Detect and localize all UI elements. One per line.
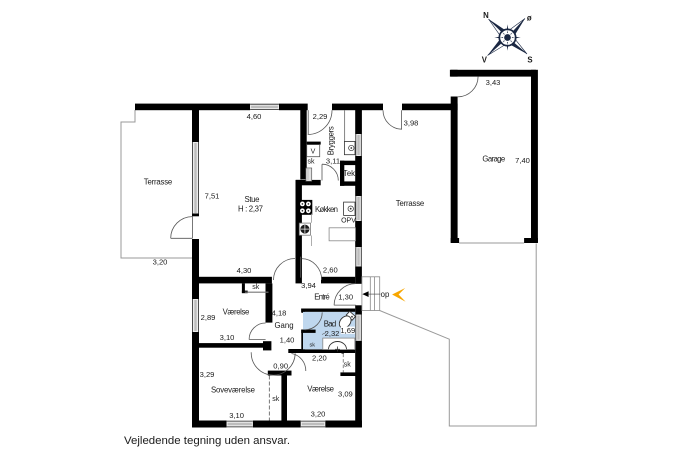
svg-text:ø: ø (527, 14, 532, 23)
svg-text:3,98: 3,98 (404, 118, 419, 127)
svg-text:2,89: 2,89 (201, 313, 216, 322)
svg-text:1,69: 1,69 (340, 326, 355, 335)
svg-text:Terrasse: Terrasse (396, 199, 425, 208)
svg-text:S: S (527, 55, 532, 64)
svg-text:Soveværelse: Soveværelse (211, 386, 255, 395)
svg-text:3,43: 3,43 (486, 78, 501, 87)
svg-text:OPV: OPV (341, 218, 356, 225)
svg-text:sk: sk (252, 284, 260, 291)
svg-text:sk: sk (309, 342, 315, 348)
svg-text:Entré: Entré (314, 292, 330, 301)
svg-text:2,32: 2,32 (325, 329, 340, 338)
svg-text:op: op (381, 290, 390, 299)
svg-text:4,18: 4,18 (272, 309, 287, 318)
svg-text:Værelse: Værelse (223, 308, 250, 317)
svg-text:3,20: 3,20 (311, 410, 326, 419)
svg-text:Gang: Gang (274, 321, 293, 330)
svg-text:3,10: 3,10 (229, 411, 244, 420)
svg-text:0,90: 0,90 (273, 362, 288, 371)
svg-text:sk: sk (272, 396, 280, 403)
svg-text:Bryggers: Bryggers (327, 126, 336, 155)
svg-text:Terrasse: Terrasse (144, 178, 173, 187)
svg-text:1,40: 1,40 (280, 336, 295, 345)
svg-text:4,30: 4,30 (237, 266, 252, 275)
svg-text:Garage: Garage (482, 155, 505, 164)
svg-text:V: V (311, 149, 316, 156)
svg-text:V: V (482, 56, 488, 65)
svg-text:3,11: 3,11 (326, 157, 340, 166)
svg-text:Stue: Stue (245, 195, 260, 204)
svg-text:Køkken: Køkken (315, 205, 338, 214)
svg-text:Værelse: Værelse (307, 385, 334, 394)
svg-text:H : 2,37: H : 2,37 (238, 205, 263, 214)
svg-text:2,20: 2,20 (312, 354, 327, 363)
svg-text:sk: sk (308, 158, 316, 165)
svg-text:3,94: 3,94 (301, 281, 316, 290)
svg-text:3,20: 3,20 (153, 258, 168, 267)
svg-text:N: N (483, 11, 489, 20)
svg-text:Tek: Tek (343, 169, 355, 178)
svg-text:Vejledende tegning uden ansvar: Vejledende tegning uden ansvar. (124, 435, 290, 447)
svg-text:7,40: 7,40 (515, 156, 530, 165)
svg-text:3,09: 3,09 (338, 390, 353, 399)
svg-text:7,51: 7,51 (205, 192, 220, 201)
svg-text:3,29: 3,29 (200, 370, 215, 379)
svg-text:1,30: 1,30 (338, 292, 353, 301)
svg-text:3,10: 3,10 (220, 333, 235, 342)
svg-text:4,60: 4,60 (247, 112, 262, 121)
svg-text:2,60: 2,60 (323, 266, 338, 275)
svg-text:Bad: Bad (324, 320, 337, 329)
svg-text:2,29: 2,29 (313, 112, 328, 121)
svg-text:sk: sk (344, 361, 352, 368)
